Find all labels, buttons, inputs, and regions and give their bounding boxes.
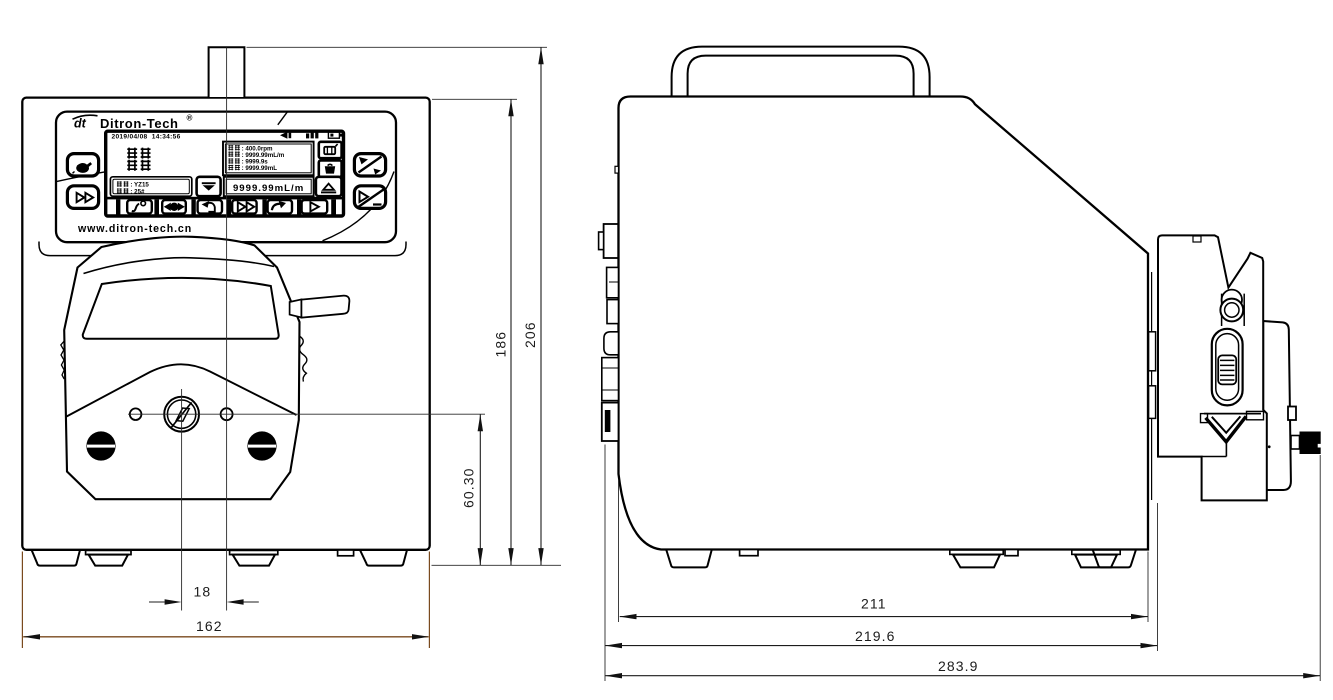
svg-text:2019/04/08 14:34:56: 2019/04/08 14:34:56 (112, 134, 181, 141)
svg-text:60.30: 60.30 (461, 467, 477, 508)
svg-text:®: ® (187, 114, 193, 123)
svg-text:www.ditron-tech.cn: www.ditron-tech.cn (77, 223, 192, 235)
svg-text:283.9: 283.9 (938, 658, 979, 674)
svg-text:dt: dt (74, 117, 87, 131)
svg-text:Ditron-Tech: Ditron-Tech (100, 116, 179, 131)
svg-text:: YZ15: : YZ15 (130, 182, 149, 189)
svg-text:9999.99mL/m: 9999.99mL/m (233, 183, 304, 194)
svg-text:: 9999.99mL: : 9999.99mL (242, 165, 278, 172)
svg-text:: 25#: : 25# (130, 189, 145, 196)
svg-text:162: 162 (196, 618, 223, 634)
svg-text:211: 211 (861, 596, 887, 612)
svg-text:186: 186 (493, 331, 509, 358)
svg-text:18: 18 (194, 584, 212, 600)
svg-text:219.6: 219.6 (855, 628, 896, 644)
svg-text:206: 206 (522, 321, 538, 348)
